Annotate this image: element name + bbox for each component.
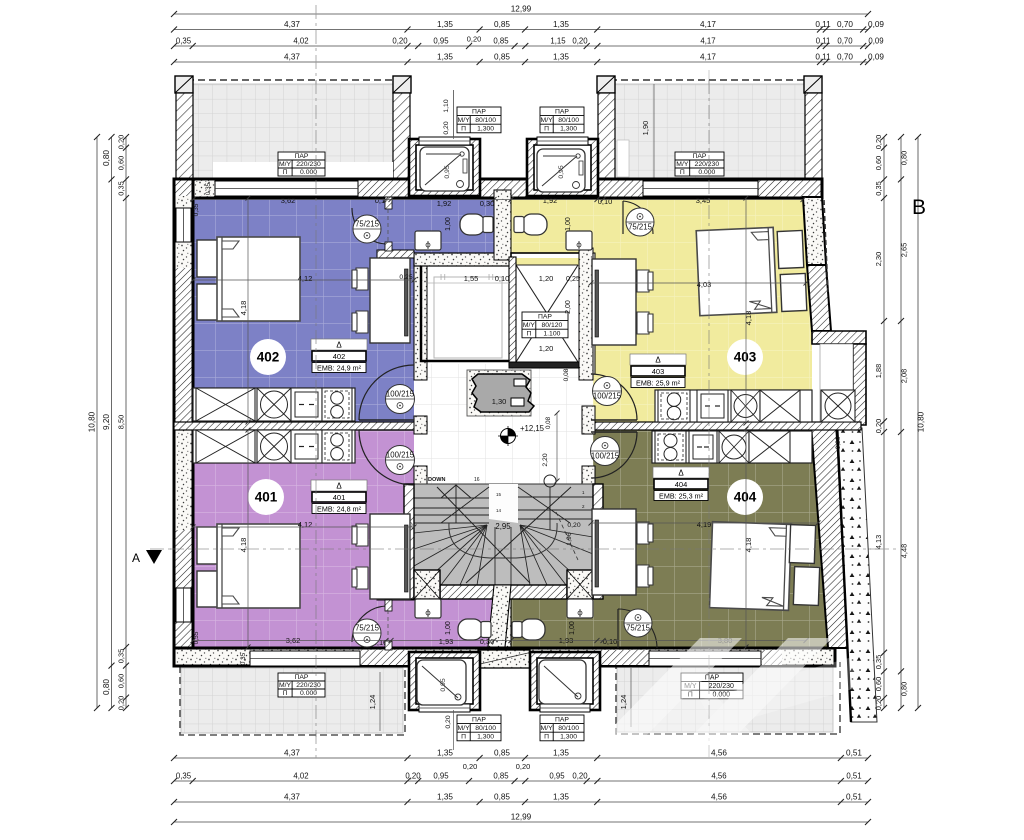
svg-text:401: 401	[333, 493, 346, 502]
svg-text:0,35: 0,35	[176, 37, 192, 46]
svg-text:16: 16	[474, 477, 480, 483]
svg-text:Δ: Δ	[678, 469, 684, 478]
svg-text:2,95: 2,95	[495, 522, 511, 531]
svg-text:4,17: 4,17	[700, 53, 716, 62]
svg-text:2,30: 2,30	[874, 252, 883, 266]
svg-text:0,51: 0,51	[846, 793, 862, 802]
svg-text:0,51: 0,51	[846, 772, 861, 781]
svg-text:4,18: 4,18	[239, 538, 248, 553]
svg-text:4,17: 4,17	[700, 37, 715, 46]
svg-text:100/215: 100/215	[386, 451, 415, 460]
svg-text:0,20: 0,20	[405, 772, 421, 781]
svg-text:0,20: 0,20	[392, 37, 408, 46]
svg-text:4,12: 4,12	[298, 520, 313, 529]
svg-text:EMB: 24,8 m²: EMB: 24,8 m²	[317, 505, 362, 514]
svg-text:4,56: 4,56	[711, 772, 726, 781]
svg-text:10,80: 10,80	[88, 411, 97, 432]
svg-text:0,95: 0,95	[558, 165, 565, 178]
svg-text:1,300: 1,300	[477, 126, 494, 133]
svg-text:403: 403	[734, 350, 757, 365]
svg-text:75/215: 75/215	[628, 223, 653, 232]
svg-text:3,45: 3,45	[696, 196, 711, 205]
svg-text:B: B	[912, 196, 926, 219]
svg-text:1,35: 1,35	[437, 793, 453, 802]
svg-text:75/215: 75/215	[626, 624, 651, 633]
svg-text:0,35: 0,35	[193, 203, 200, 216]
svg-text:2,65: 2,65	[900, 243, 909, 257]
svg-text:ПАР: ПАР	[555, 108, 569, 115]
svg-text:0,20: 0,20	[467, 35, 481, 44]
svg-text:ПАР: ПАР	[295, 153, 309, 160]
svg-text:100/215: 100/215	[386, 390, 415, 399]
svg-text:4,12: 4,12	[298, 274, 313, 283]
svg-text:0,20: 0,20	[874, 135, 883, 149]
svg-text:3,62: 3,62	[281, 196, 296, 205]
svg-text:0,95: 0,95	[440, 678, 447, 691]
svg-text:2,00: 2,00	[565, 300, 572, 314]
svg-text:0,09: 0,09	[868, 37, 883, 46]
svg-text:1,00: 1,00	[445, 217, 452, 231]
svg-text:80/100: 80/100	[475, 725, 496, 732]
svg-text:EMB: 25,3 m²: EMB: 25,3 m²	[659, 492, 704, 501]
svg-text:220/230: 220/230	[296, 682, 321, 689]
svg-text:П: П	[461, 734, 466, 741]
svg-text:0,11: 0,11	[815, 53, 831, 62]
svg-text:0,95: 0,95	[433, 772, 449, 781]
svg-text:0,60: 0,60	[117, 674, 126, 688]
svg-text:220/230: 220/230	[296, 161, 321, 168]
svg-text:ПАР: ПАР	[693, 153, 707, 160]
svg-text:0,70: 0,70	[837, 53, 853, 62]
svg-text:0.000: 0.000	[300, 169, 317, 176]
svg-text:0,30: 0,30	[480, 199, 495, 208]
svg-text:4,56: 4,56	[711, 793, 727, 802]
svg-text:1,35: 1,35	[553, 20, 569, 29]
svg-text:4,37: 4,37	[284, 793, 300, 802]
svg-text:100/215: 100/215	[591, 452, 620, 461]
svg-text:4,17: 4,17	[700, 20, 716, 29]
svg-text:0,08: 0,08	[563, 368, 570, 381]
svg-text:1,300: 1,300	[560, 126, 577, 133]
svg-text:ПАР: ПАР	[472, 108, 486, 115]
svg-text:ПАР: ПАР	[295, 674, 309, 681]
svg-text:0,20: 0,20	[572, 772, 588, 781]
svg-text:0,35: 0,35	[240, 652, 247, 665]
svg-text:403: 403	[652, 367, 665, 376]
svg-text:H: H	[440, 273, 446, 282]
svg-text:0,60: 0,60	[117, 156, 126, 170]
svg-text:0,80: 0,80	[900, 151, 909, 165]
svg-text:0,20: 0,20	[572, 37, 588, 46]
svg-text:0,35: 0,35	[874, 655, 883, 669]
svg-text:1,24: 1,24	[619, 695, 628, 710]
svg-text:80/100: 80/100	[558, 725, 579, 732]
svg-text:0,85: 0,85	[494, 749, 510, 758]
svg-text:0,85: 0,85	[493, 37, 509, 46]
svg-text:EMB: 25,9 m²: EMB: 25,9 m²	[636, 379, 681, 388]
svg-text:0,80: 0,80	[102, 150, 111, 166]
svg-text:1,35: 1,35	[553, 749, 569, 758]
svg-text:14: 14	[496, 508, 502, 513]
svg-text:0,85: 0,85	[493, 772, 509, 781]
svg-text:0,11: 0,11	[815, 20, 831, 29]
svg-text:1,20: 1,20	[539, 274, 554, 283]
svg-text:M/Y: M/Y	[458, 117, 471, 124]
svg-text:1,15: 1,15	[550, 37, 566, 46]
svg-text:DOWN: DOWN	[428, 477, 445, 483]
svg-text:1,00: 1,00	[445, 621, 452, 635]
svg-text:401: 401	[255, 490, 278, 505]
svg-text:1,93: 1,93	[439, 637, 454, 646]
svg-text:ПАР: ПАР	[705, 674, 720, 681]
svg-text:П: П	[544, 734, 549, 741]
svg-text:404: 404	[675, 480, 688, 489]
svg-text:75/215: 75/215	[355, 624, 380, 633]
svg-text:0,20: 0,20	[835, 436, 842, 449]
svg-text:0,95: 0,95	[549, 772, 565, 781]
svg-text:4,18: 4,18	[744, 311, 753, 326]
svg-text:П: П	[283, 169, 288, 176]
svg-text:1,55: 1,55	[464, 274, 479, 283]
svg-text:8,50: 8,50	[117, 415, 126, 429]
svg-text:M/Y: M/Y	[541, 725, 554, 732]
svg-text:0,35: 0,35	[176, 772, 192, 781]
svg-text:0,30: 0,30	[480, 637, 495, 646]
svg-text:4,37: 4,37	[284, 20, 300, 29]
svg-text:0,10: 0,10	[495, 274, 510, 283]
svg-text:1,30: 1,30	[492, 397, 507, 406]
svg-text:1,300: 1,300	[477, 734, 494, 741]
svg-text:80/100: 80/100	[475, 117, 496, 124]
svg-text:0,20: 0,20	[463, 762, 477, 771]
svg-text:1,00: 1,00	[569, 621, 576, 635]
svg-text:4,13: 4,13	[874, 535, 883, 549]
svg-text:M/Y: M/Y	[541, 117, 554, 124]
svg-text:1,96: 1,96	[566, 532, 573, 545]
svg-text:1,35: 1,35	[437, 53, 453, 62]
svg-text:0,80: 0,80	[900, 682, 909, 696]
svg-text:4,37: 4,37	[284, 53, 300, 62]
svg-text:ПАР: ПАР	[472, 716, 486, 723]
svg-text:0.000: 0.000	[300, 690, 317, 697]
svg-text:1,20: 1,20	[539, 344, 554, 353]
svg-text:ПАР: ПАР	[555, 716, 569, 723]
svg-text:0,20: 0,20	[445, 715, 452, 728]
svg-text:402: 402	[257, 350, 280, 365]
svg-text:0,09: 0,09	[868, 20, 884, 29]
svg-text:1,300: 1,300	[560, 734, 577, 741]
svg-text:1,24: 1,24	[368, 695, 377, 710]
svg-text:220/230: 220/230	[709, 683, 734, 690]
svg-text:П: П	[526, 331, 531, 338]
svg-text:0,35: 0,35	[874, 181, 883, 195]
svg-text:1,35: 1,35	[553, 53, 569, 62]
svg-text:0,80: 0,80	[102, 679, 111, 695]
svg-text:0,35: 0,35	[193, 631, 200, 644]
svg-text:0,85: 0,85	[494, 20, 510, 29]
svg-text:0,70: 0,70	[837, 37, 853, 46]
svg-text:H: H	[488, 273, 494, 282]
svg-text:Δ: Δ	[336, 482, 342, 491]
svg-text:12,99: 12,99	[511, 5, 532, 14]
svg-text:A: A	[132, 551, 140, 565]
svg-text:0,10: 0,10	[598, 197, 613, 206]
svg-text:1,35: 1,35	[553, 793, 569, 802]
svg-text:0,35: 0,35	[205, 182, 212, 195]
svg-text:100/215: 100/215	[593, 392, 622, 401]
svg-text:M/Y: M/Y	[458, 725, 471, 732]
svg-text:0,08: 0,08	[545, 416, 552, 429]
svg-text:П: П	[461, 126, 466, 133]
svg-text:0,35: 0,35	[117, 181, 126, 195]
svg-text:0,09: 0,09	[868, 53, 884, 62]
svg-text:1,10: 1,10	[443, 99, 450, 112]
svg-text:0,20: 0,20	[516, 762, 530, 771]
svg-text:4,02: 4,02	[293, 772, 308, 781]
svg-text:0,95: 0,95	[444, 165, 451, 178]
svg-text:П: П	[283, 690, 288, 697]
svg-text:402: 402	[333, 352, 346, 361]
svg-text:4,18: 4,18	[744, 538, 753, 553]
svg-text:0,60: 0,60	[874, 156, 883, 170]
svg-text:1.100: 1.100	[543, 331, 560, 338]
svg-text:M/Y: M/Y	[279, 161, 292, 168]
svg-text:0,35: 0,35	[117, 649, 126, 663]
svg-text:M/Y: M/Y	[279, 682, 292, 689]
svg-text:2,20: 2,20	[542, 453, 549, 466]
svg-text:80/100: 80/100	[558, 117, 579, 124]
svg-text:0,85: 0,85	[494, 793, 510, 802]
svg-text:0,11: 0,11	[816, 37, 831, 46]
svg-text:0,70: 0,70	[837, 20, 853, 29]
svg-text:1,90: 1,90	[641, 121, 650, 136]
svg-text:15: 15	[496, 492, 502, 497]
svg-text:1,92: 1,92	[543, 196, 558, 205]
svg-text:4,18: 4,18	[239, 301, 248, 316]
svg-text:9,20: 9,20	[102, 414, 111, 430]
svg-text:1,35: 1,35	[437, 749, 453, 758]
svg-text:1,88: 1,88	[874, 364, 883, 378]
svg-text:0,20: 0,20	[117, 696, 126, 710]
svg-text:0,95: 0,95	[433, 37, 449, 46]
svg-text:0.000: 0.000	[698, 169, 715, 176]
svg-text:M/Y: M/Y	[676, 161, 689, 168]
svg-text:0,51: 0,51	[846, 749, 862, 758]
svg-text:4,37: 4,37	[284, 749, 300, 758]
svg-text:1,92: 1,92	[437, 199, 452, 208]
svg-text:EMB: 24,9 m²: EMB: 24,9 m²	[317, 364, 362, 373]
svg-text:1,35: 1,35	[437, 20, 453, 29]
svg-text:0,20: 0,20	[443, 121, 450, 134]
svg-text:0,20: 0,20	[117, 135, 126, 149]
svg-text:1,00: 1,00	[565, 217, 572, 231]
svg-text:220/230: 220/230	[695, 161, 720, 168]
svg-text:80/120: 80/120	[542, 322, 563, 329]
svg-text:0,20: 0,20	[567, 522, 580, 529]
svg-text:12,99: 12,99	[511, 813, 532, 822]
svg-text:ПАР: ПАР	[538, 313, 552, 320]
svg-text:0,85: 0,85	[494, 53, 510, 62]
svg-text:4,02: 4,02	[293, 37, 308, 46]
svg-text:+12,15: +12,15	[520, 424, 545, 433]
svg-text:4,48: 4,48	[900, 544, 909, 558]
svg-text:10,80: 10,80	[917, 411, 926, 432]
svg-text:Δ: Δ	[336, 341, 342, 350]
svg-text:0,25: 0,25	[566, 274, 580, 283]
svg-text:M/Y: M/Y	[523, 322, 536, 329]
svg-text:404: 404	[734, 490, 757, 505]
svg-text:Δ: Δ	[655, 356, 661, 365]
svg-text:4,56: 4,56	[711, 749, 727, 758]
svg-text:П: П	[680, 169, 685, 176]
svg-text:0,20: 0,20	[874, 419, 883, 433]
svg-text:75/215: 75/215	[355, 220, 380, 229]
svg-text:П: П	[544, 126, 549, 133]
svg-text:2,08: 2,08	[900, 369, 909, 383]
